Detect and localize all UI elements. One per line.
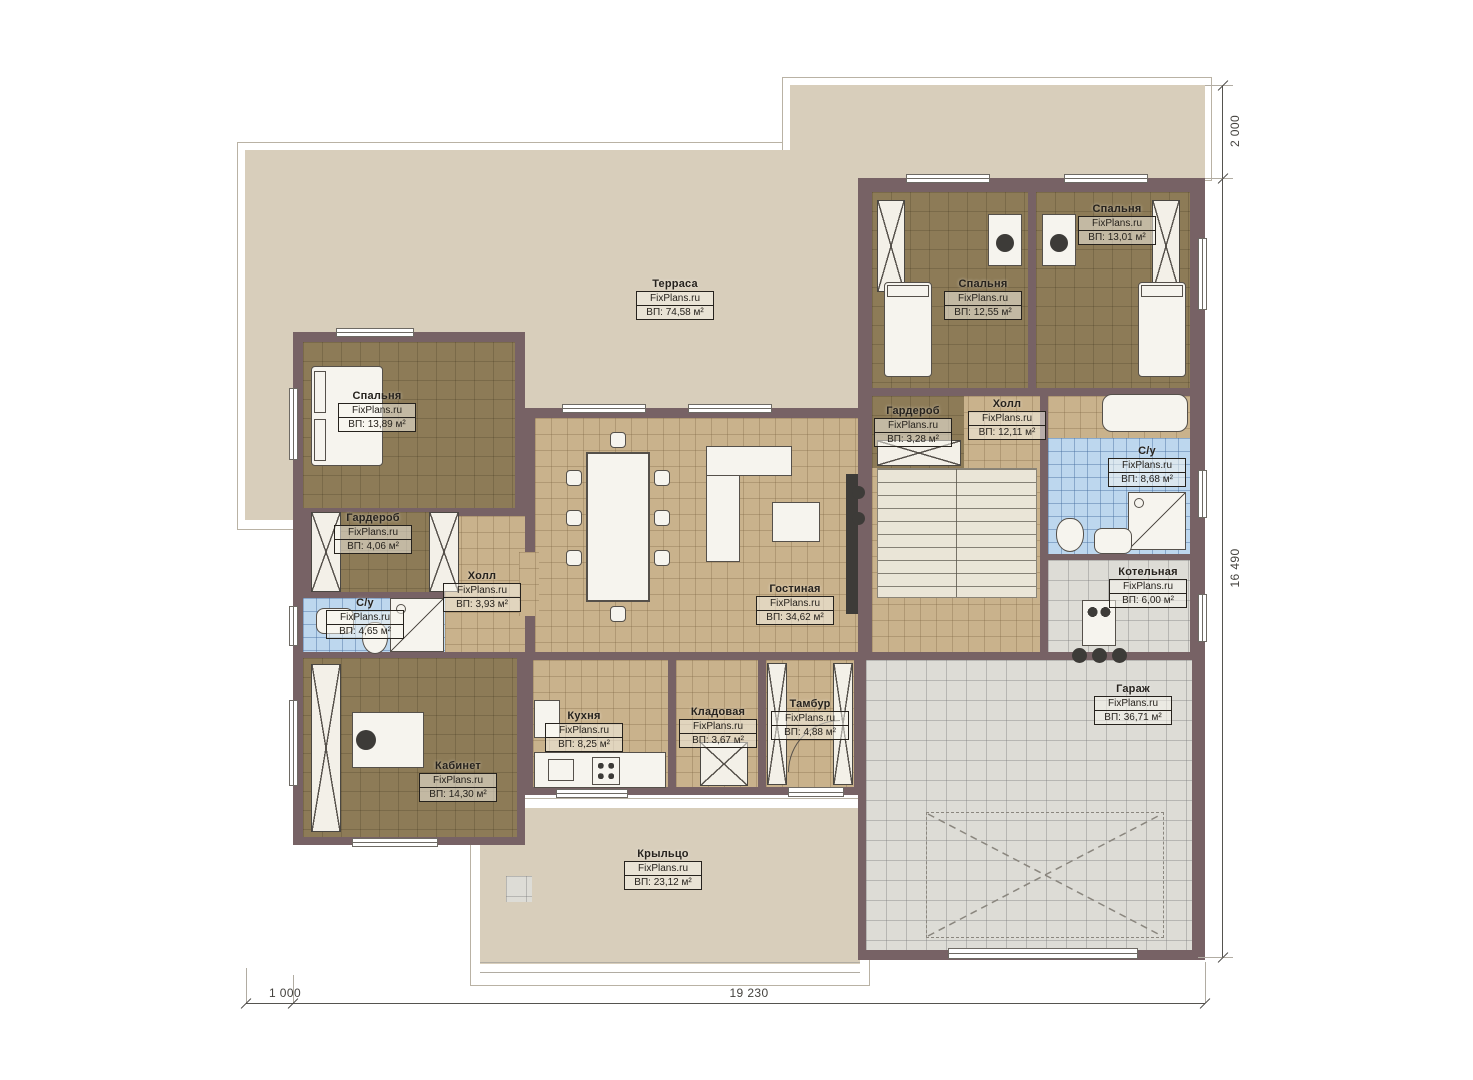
washbasin [1094,528,1132,554]
kitchen-sink [548,759,574,781]
room-label-kitchen: Кухня FixPlans.ru ВП: 8,25 м² [545,710,623,752]
dimension-value-1000: 1 000 [269,986,301,1000]
room-area: ВП: 23,12 м² [625,876,701,889]
closet-icon [311,664,341,832]
wall-light [852,486,865,499]
room-name: Холл [968,398,1046,410]
brand: FixPlans.ru [1079,217,1155,231]
room-name: Котельная [1109,566,1187,578]
brand: FixPlans.ru [335,526,411,540]
brand: FixPlans.ru [1095,697,1171,711]
brand: FixPlans.ru [875,419,951,433]
room-area: ВП: 12,55 м² [945,306,1021,319]
window [562,404,646,413]
room-area: ВП: 4,65 м² [327,625,403,638]
porch-step-line [480,962,860,963]
staircase [877,468,1037,598]
room-name: Спальня [338,390,416,402]
brand: FixPlans.ru [420,774,496,788]
room-area: ВП: 13,01 м² [1079,231,1155,244]
room-area: ВП: 3,67 м² [680,734,756,747]
brand: FixPlans.ru [546,724,622,738]
extension-line [1198,957,1233,958]
chair [610,606,626,622]
closet-icon [1152,200,1180,292]
window [289,700,298,786]
porch-step-line [480,972,860,973]
room-name: Кабинет [419,760,497,772]
room-area: ВП: 36,71 м² [1095,711,1171,724]
brand: FixPlans.ru [757,597,833,611]
porch-step [506,876,532,902]
room-label-bedroom-right-2: Спальня FixPlans.ru ВП: 13,01 м² [1078,203,1156,245]
room-label-box: FixPlans.ru ВП: 8,68 м² [1108,458,1186,487]
closet-icon [877,200,905,292]
window [1198,470,1207,518]
pillow [314,419,326,461]
room-area: ВП: 13,89 м² [339,418,415,431]
dimension-value-16490: 16 490 [1228,548,1242,587]
doorway-hall-living [519,552,539,616]
dimension-value-19230: 19 230 [729,986,768,1000]
room-area: ВП: 3,28 м² [875,433,951,446]
room-label-study: Кабинет FixPlans.ru ВП: 14,30 м² [419,760,497,802]
room-label-pantry: Кладовая FixPlans.ru ВП: 3,67 м² [679,706,757,748]
room-label-living: Гостиная FixPlans.ru ВП: 34,62 м² [756,583,834,625]
appliance-knob [1092,648,1107,663]
extension-line [1205,85,1233,86]
room-label-wardrobe-left: Гардероб FixPlans.ru ВП: 4,06 м² [334,512,412,554]
brand: FixPlans.ru [772,712,848,726]
office-chair [1050,234,1068,252]
room-label-terrace: Терраса FixPlans.ru ВП: 74,58 м² [636,278,714,320]
chair [566,470,582,486]
floor-plan: Терраса FixPlans.ru ВП: 74,58 м² Спальня… [0,0,1473,1080]
chair [654,470,670,486]
brand: FixPlans.ru [637,292,713,306]
room-label-box: FixPlans.ru ВП: 8,25 м² [545,723,623,752]
room-name: Крыльцо [624,848,702,860]
window [688,404,772,413]
room-name: С/у [1108,445,1186,457]
entry-door [788,787,844,797]
window [289,606,298,646]
room-name: Гараж [1094,683,1172,695]
brand: FixPlans.ru [969,412,1045,426]
office-chair [356,730,376,750]
room-label-box: FixPlans.ru ВП: 36,71 м² [1094,696,1172,725]
window [906,174,990,183]
room-label-box: FixPlans.ru ВП: 74,58 м² [636,291,714,320]
room-label-bath-right: С/у FixPlans.ru ВП: 8,68 м² [1108,445,1186,487]
room-label-box: FixPlans.ru ВП: 3,28 м² [874,418,952,447]
room-area: ВП: 8,68 м² [1109,473,1185,486]
window [556,789,628,798]
extension-line [1205,178,1233,179]
room-label-vestibule: Тамбур FixPlans.ru ВП: 4,88 м² [771,698,849,740]
window [336,328,414,337]
room-name: Холл [443,570,521,582]
office-chair [996,234,1014,252]
room-label-box: FixPlans.ru ВП: 3,93 м² [443,583,521,612]
dining-table [586,452,650,602]
room-label-bedroom-right-1: Спальня FixPlans.ru ВП: 12,55 м² [944,278,1022,320]
dimension-line-bottom [246,1003,1205,1004]
appliance-knob [1072,648,1087,663]
room-area: ВП: 4,06 м² [335,540,411,553]
appliance-knob [1112,648,1127,663]
stove [592,757,620,785]
room-label-wardrobe-right: Гардероб FixPlans.ru ВП: 3,28 м² [874,405,952,447]
room-area: ВП: 3,93 м² [444,598,520,611]
room-name: Спальня [944,278,1022,290]
room-label-box: FixPlans.ru ВП: 4,88 м² [771,711,849,740]
room-label-boiler: Котельная FixPlans.ru ВП: 6,00 м² [1109,566,1187,608]
extension-line [246,968,247,1003]
room-label-box: FixPlans.ru ВП: 12,55 м² [944,291,1022,320]
room-label-garage: Гараж FixPlans.ru ВП: 36,71 м² [1094,683,1172,725]
room-name: Кухня [545,710,623,722]
room-name: С/у [326,597,404,609]
window [1198,238,1207,310]
brand: FixPlans.ru [1109,459,1185,473]
room-label-bath-left: С/у FixPlans.ru ВП: 4,65 м² [326,597,404,639]
dimension-line-right [1222,85,1223,958]
room-name: Гардероб [334,512,412,524]
window [1064,174,1148,183]
room-label-hall-left: Холл FixPlans.ru ВП: 3,93 м² [443,570,521,612]
room-area: ВП: 8,25 м² [546,738,622,751]
chair [566,510,582,526]
room-label-box: FixPlans.ru ВП: 4,65 м² [326,610,404,639]
room-label-hall-right: Холл FixPlans.ru ВП: 12,11 м² [968,398,1046,440]
room-name: Кладовая [679,706,757,718]
pantry-shelf-icon [700,742,748,786]
shower-head [1134,498,1144,508]
room-name: Гардероб [874,405,952,417]
chair [654,510,670,526]
bathtub [1102,394,1188,432]
room-area: ВП: 4,88 м² [772,726,848,739]
room-label-box: FixPlans.ru ВП: 14,30 м² [419,773,497,802]
garage-door [948,948,1138,959]
sofa [706,446,792,476]
brand: FixPlans.ru [1110,580,1186,594]
coffee-table [772,502,820,542]
room-area: ВП: 6,00 м² [1110,594,1186,607]
room-label-box: FixPlans.ru ВП: 23,12 м² [624,861,702,890]
window [289,388,298,460]
pillow [314,371,326,413]
brand: FixPlans.ru [339,404,415,418]
room-label-box: FixPlans.ru ВП: 6,00 м² [1109,579,1187,608]
room-label-box: FixPlans.ru ВП: 3,67 м² [679,719,757,748]
dimension-value-2000: 2 000 [1228,115,1242,147]
room-area: ВП: 34,62 м² [757,611,833,624]
brand: FixPlans.ru [680,720,756,734]
toilet [1056,518,1084,552]
window [352,838,438,847]
room-label-porch: Крыльцо FixPlans.ru ВП: 23,12 м² [624,848,702,890]
window [1198,594,1207,642]
pillow [887,285,929,297]
room-area: ВП: 12,11 м² [969,426,1045,439]
chair [654,550,670,566]
room-name: Терраса [636,278,714,290]
garage-parking-cross [926,812,1164,938]
room-area: ВП: 14,30 м² [420,788,496,801]
room-label-bedroom-left: Спальня FixPlans.ru ВП: 13,89 м² [338,390,416,432]
pillow [1141,285,1183,297]
room-label-box: FixPlans.ru ВП: 12,11 м² [968,411,1046,440]
brand: FixPlans.ru [327,611,403,625]
room-label-box: FixPlans.ru ВП: 4,06 м² [334,525,412,554]
room-name: Гостиная [756,583,834,595]
brand: FixPlans.ru [444,584,520,598]
room-label-box: FixPlans.ru ВП: 13,89 м² [338,403,416,432]
room-label-box: FixPlans.ru ВП: 13,01 м² [1078,216,1156,245]
room-name: Спальня [1078,203,1156,215]
brand: FixPlans.ru [945,292,1021,306]
extension-line [1205,962,1206,1003]
terrace-paving-top [790,85,1205,178]
room-name: Тамбур [771,698,849,710]
chair [610,432,626,448]
room-area: ВП: 74,58 м² [637,306,713,319]
brand: FixPlans.ru [625,862,701,876]
wall-light [852,512,865,525]
room-label-box: FixPlans.ru ВП: 34,62 м² [756,596,834,625]
chair [566,550,582,566]
